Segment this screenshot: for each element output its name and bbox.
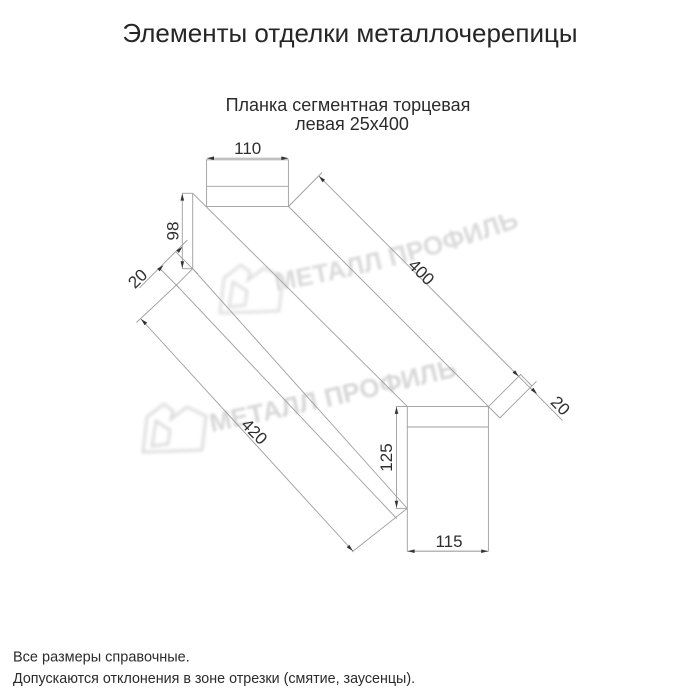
svg-text:МЕТАЛЛ ПРОФИЛЬ: МЕТАЛЛ ПРОФИЛЬ: [272, 204, 522, 297]
svg-text:125: 125: [377, 443, 396, 471]
svg-text:20: 20: [124, 265, 151, 292]
svg-text:левая 25х400: левая 25х400: [295, 114, 409, 134]
svg-text:98: 98: [163, 222, 182, 241]
svg-text:Все размеры справочные.: Все размеры справочные.: [13, 650, 190, 666]
svg-text:20: 20: [547, 392, 574, 419]
svg-text:110: 110: [234, 139, 261, 158]
svg-text:Допускаются отклонения в зоне: Допускаются отклонения в зоне отрезки (с…: [13, 671, 415, 687]
svg-text:Элементы отделки металлочерепи: Элементы отделки металлочерепицы: [122, 18, 577, 48]
svg-text:115: 115: [435, 532, 462, 551]
svg-text:Планка сегментная торцевая: Планка сегментная торцевая: [226, 95, 471, 115]
